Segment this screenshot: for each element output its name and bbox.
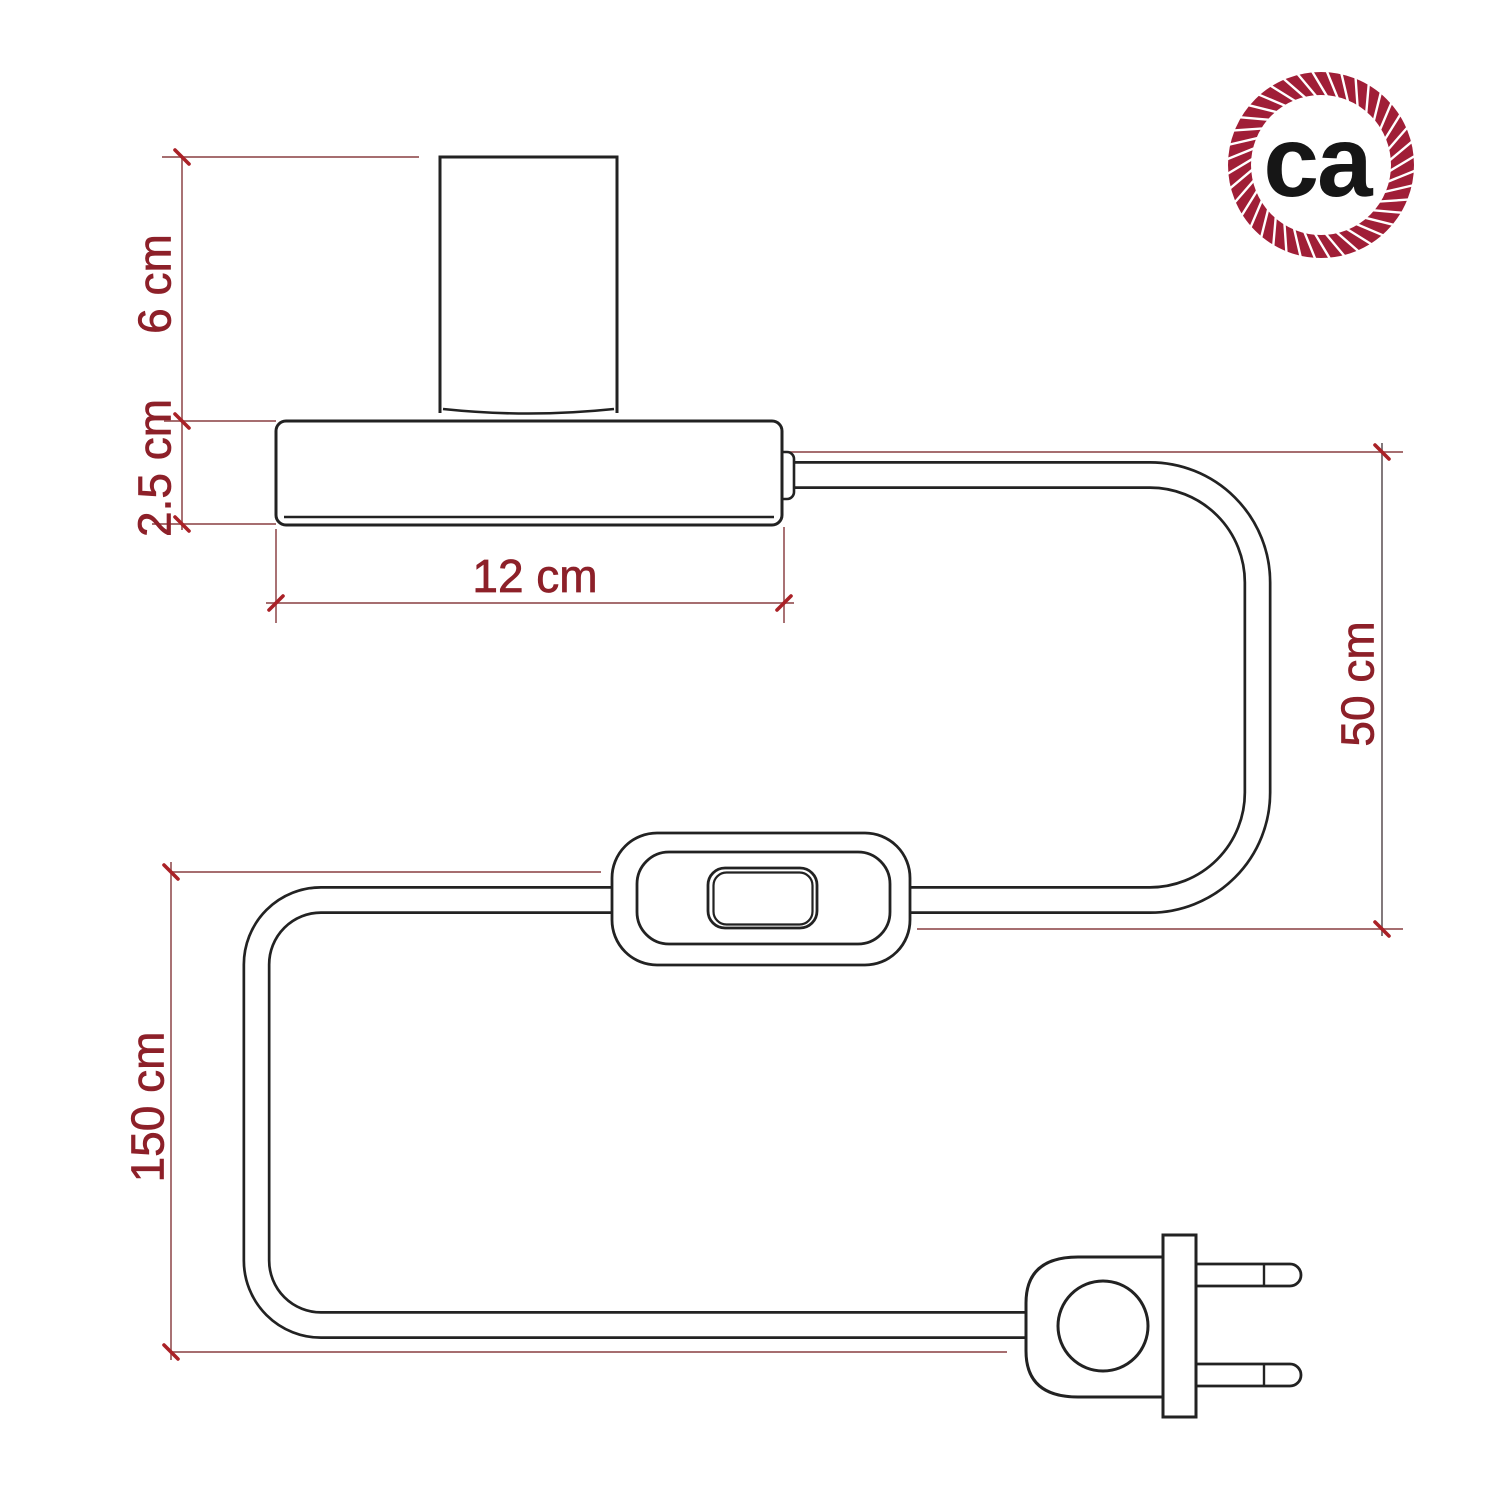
svg-text:150 cm: 150 cm — [122, 1032, 174, 1183]
svg-text:ca: ca — [1263, 106, 1374, 218]
svg-text:12 cm: 12 cm — [472, 550, 597, 602]
svg-text:50 cm: 50 cm — [1332, 621, 1384, 746]
svg-text:6 cm: 6 cm — [129, 234, 181, 334]
svg-text:2.5 cm: 2.5 cm — [129, 399, 181, 537]
